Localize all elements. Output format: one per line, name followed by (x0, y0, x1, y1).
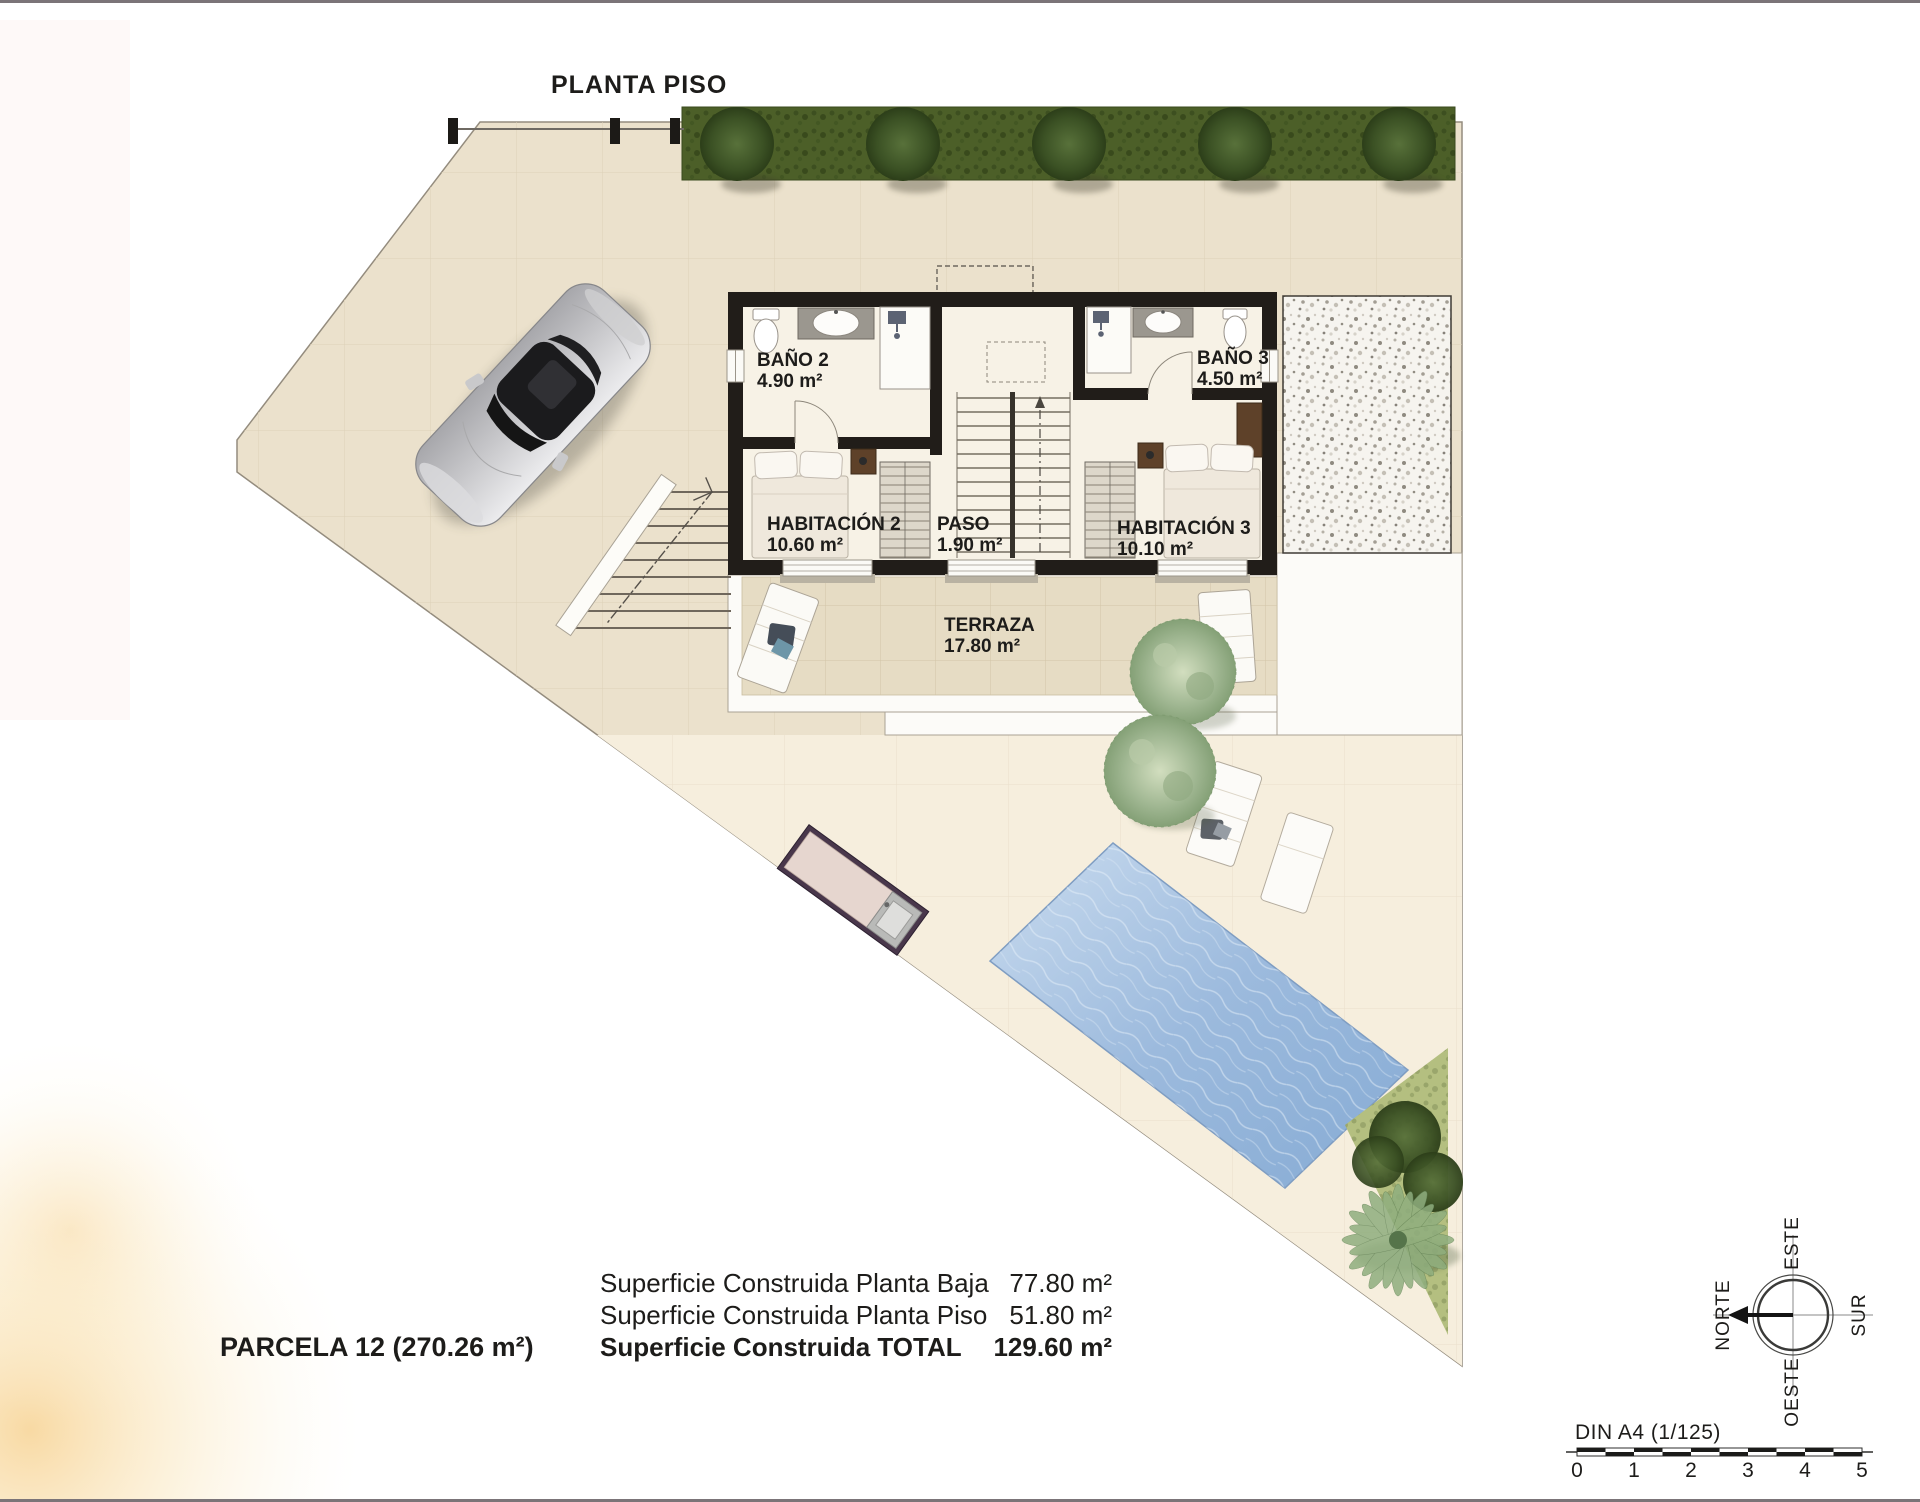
hedge-tree (700, 107, 774, 181)
hedge-strip (682, 107, 1455, 193)
background-glow (0, 20, 360, 1502)
hedge-tree (1362, 107, 1436, 181)
compass-rose-icon (1713, 1235, 1873, 1395)
floor-plan-drawing (0, 0, 1920, 1502)
scale-bar (1566, 1448, 1873, 1456)
hedge-tree (1032, 107, 1106, 181)
building (727, 266, 1278, 583)
gravel-area (1283, 296, 1451, 553)
floor-plan-page: PLANTA PISO BAÑO 2 4.90 m² BAÑO 3 4.50 m… (0, 0, 1920, 1502)
terrace-windows (780, 560, 1250, 583)
hedge-tree (1198, 107, 1272, 181)
hedge-tree (866, 107, 940, 181)
